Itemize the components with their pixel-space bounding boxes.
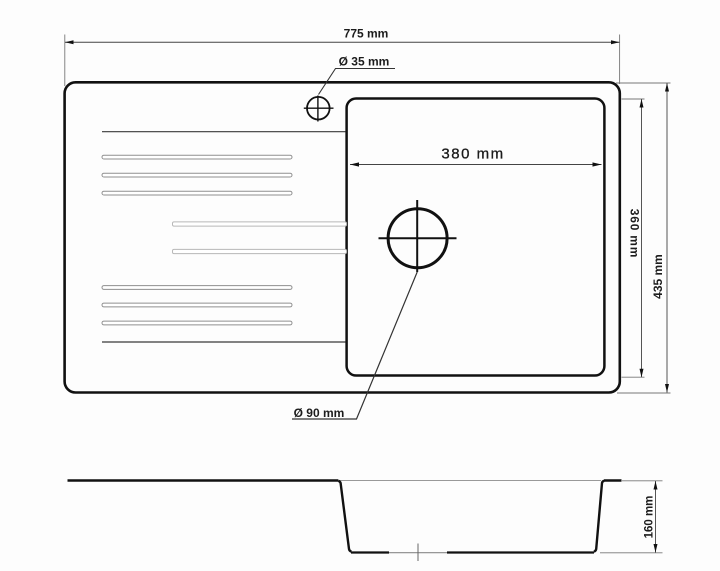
svg-text:160 mm: 160 mm <box>644 496 656 539</box>
svg-text:435 mm: 435 mm <box>651 254 665 299</box>
svg-text:360 mm: 360 mm <box>628 209 642 259</box>
svg-text:775 mm: 775 mm <box>344 27 389 41</box>
svg-text:380 mm: 380 mm <box>441 146 504 163</box>
svg-text:Ø 90 mm: Ø 90 mm <box>294 406 345 420</box>
svg-text:Ø 35 mm: Ø 35 mm <box>339 55 390 69</box>
